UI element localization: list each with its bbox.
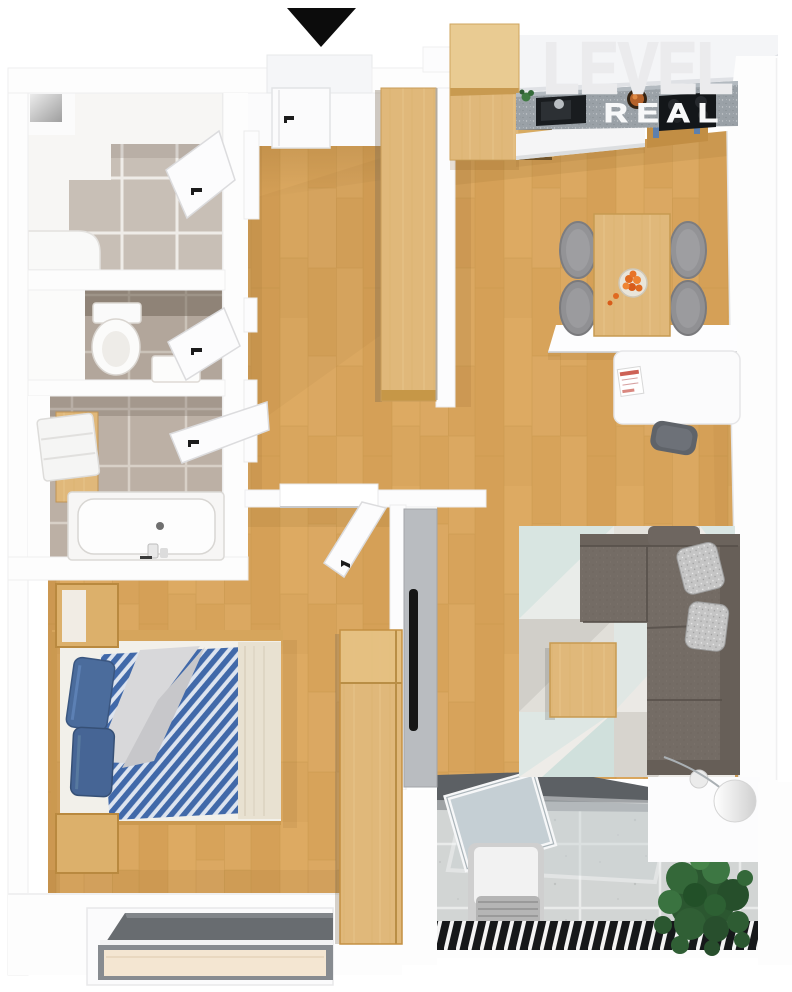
svg-text:R E A L: R E A L [604, 98, 718, 128]
svg-text:LEVEL: LEVEL [543, 29, 733, 109]
